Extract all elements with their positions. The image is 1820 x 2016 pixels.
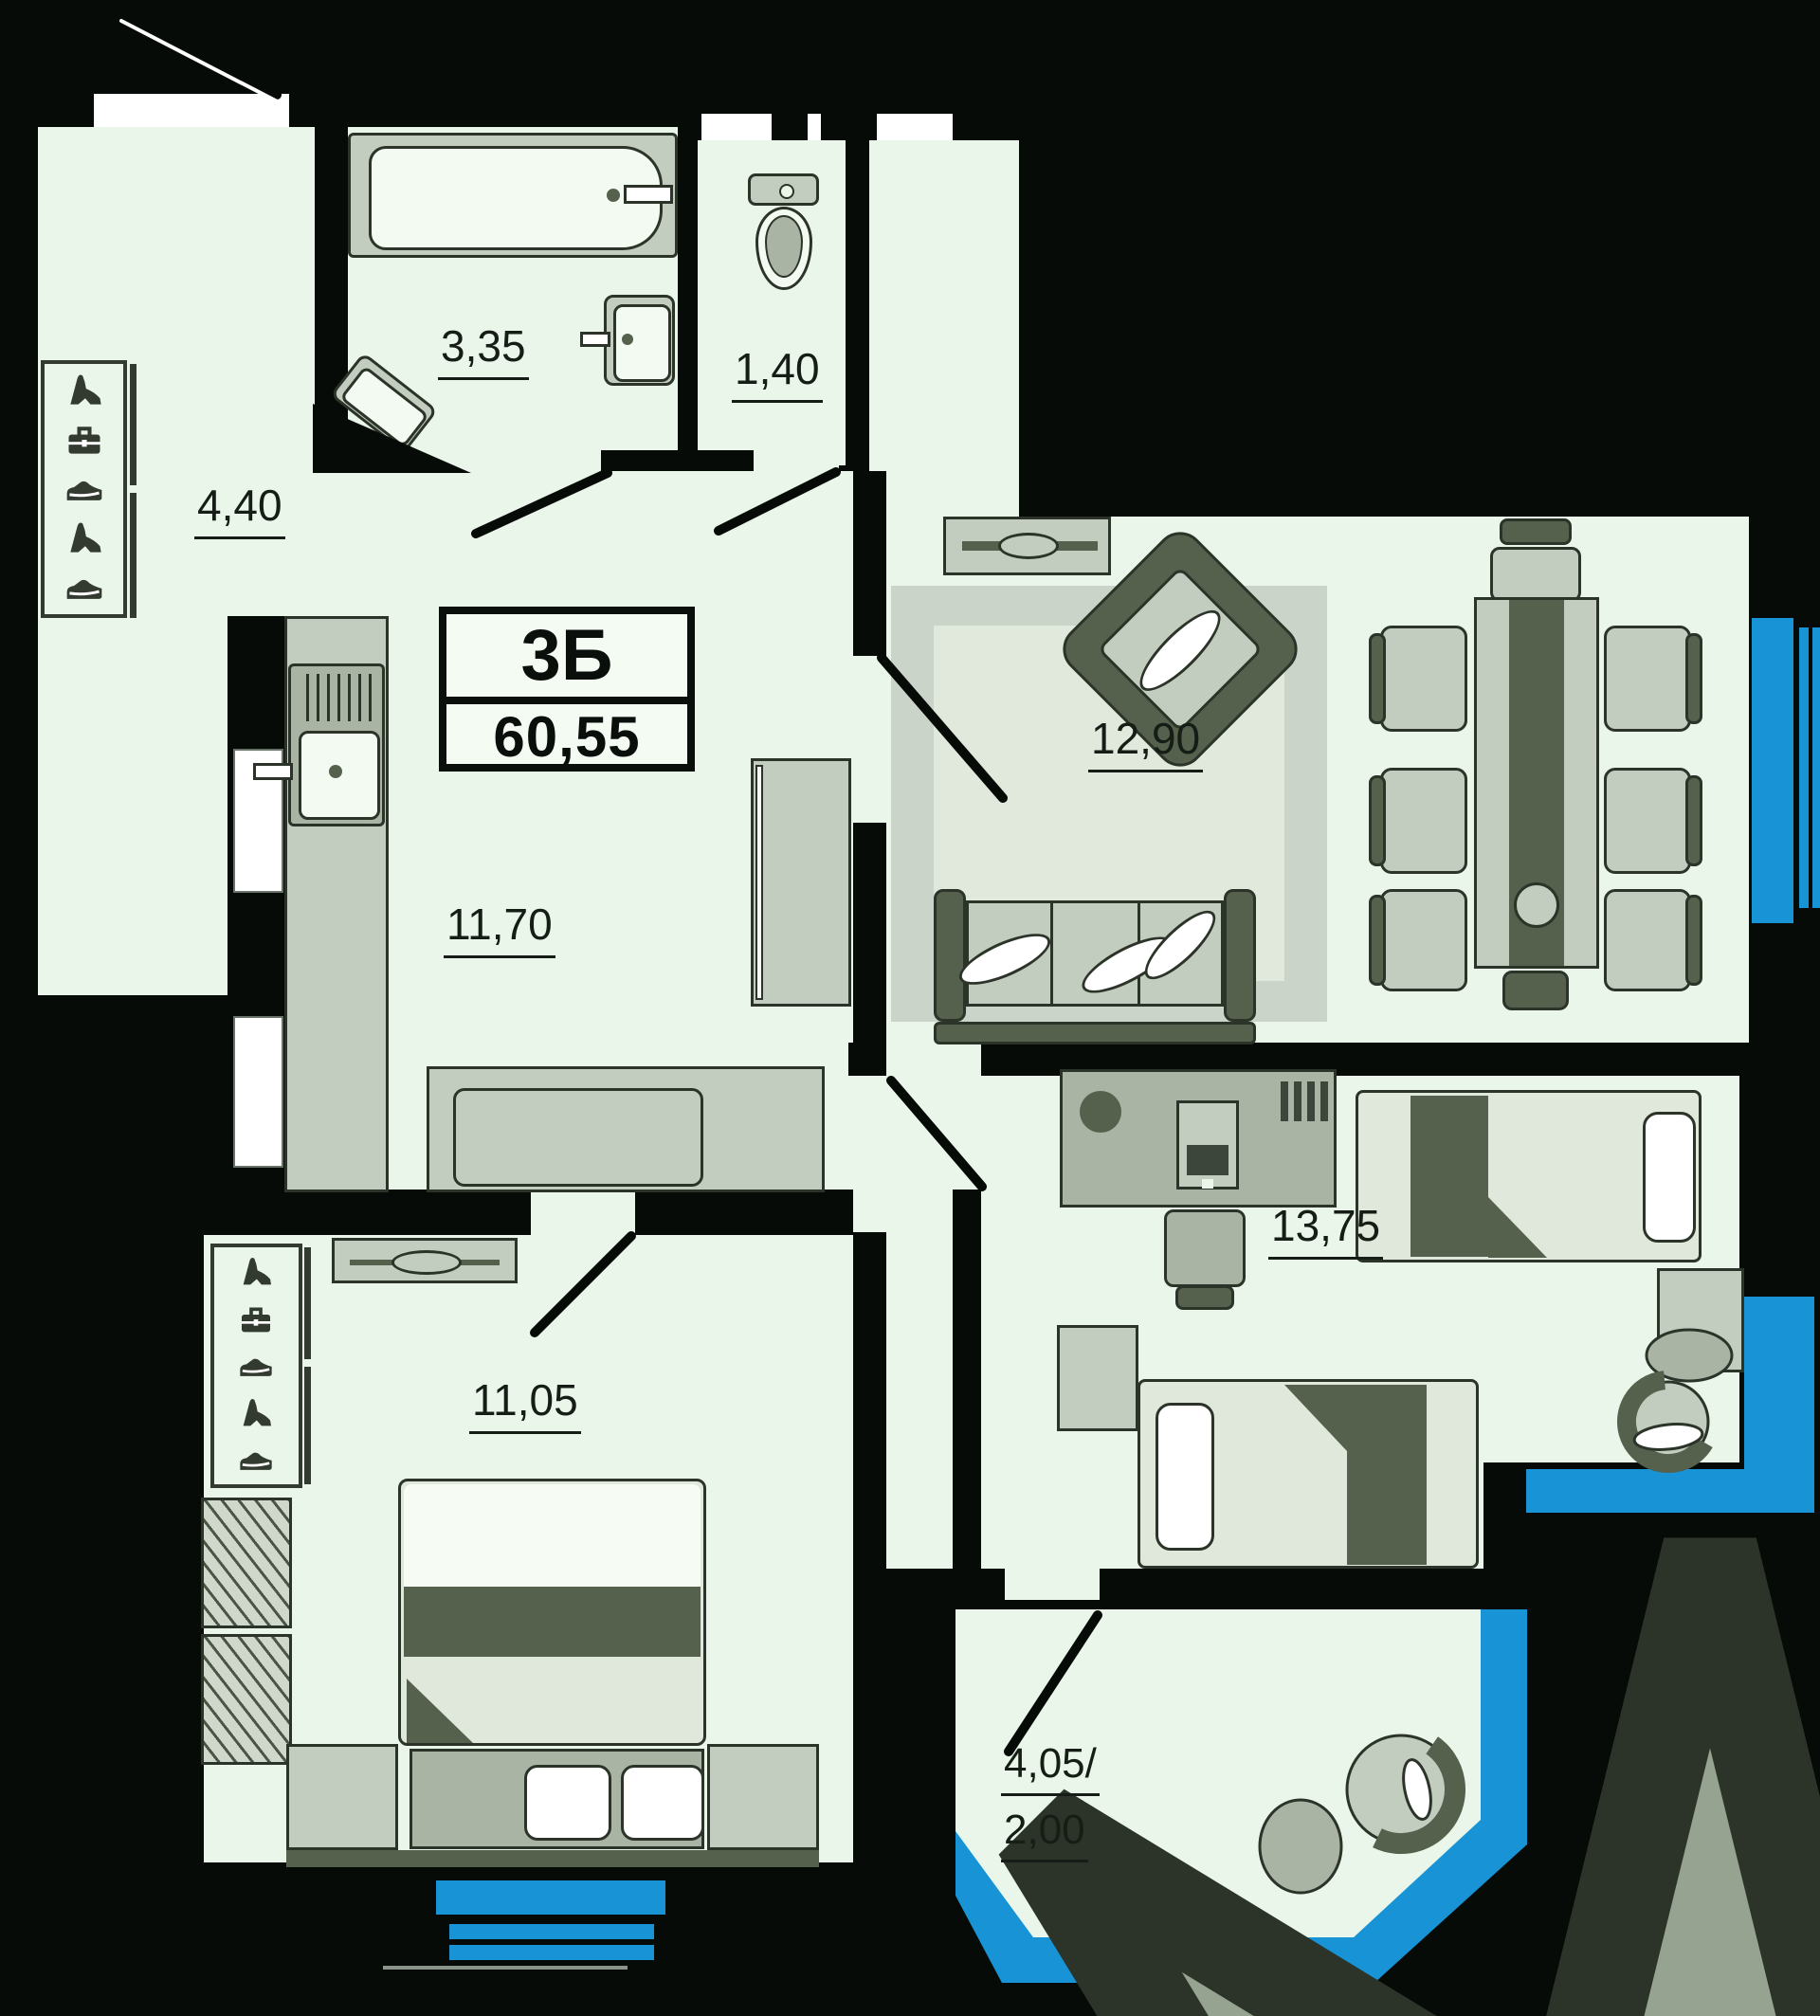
desk-chair-back [1175,1285,1234,1310]
kitchen-sink-unit [288,663,385,826]
stove [453,1088,703,1187]
bedroom-large-window-glass [1526,1469,1814,1513]
apartment-total-area: 60,55 [446,704,687,770]
wall-segment [953,1190,981,1569]
rack-divider [130,364,136,485]
entrance-door-leaf [106,6,277,95]
blanket-fold [407,1679,473,1743]
sofa-armrest [934,889,966,1022]
wall-segment [848,1043,886,1076]
dining-chair-arm [1369,775,1386,866]
bed-single [1356,1090,1702,1262]
wall-segment [846,140,869,471]
kitchen-faucet [253,763,293,780]
door-swing-line [1009,1615,1098,1752]
toilet-bowl-inner [765,215,803,278]
bedroom-large-area-label: 13,75 [1268,1200,1383,1260]
bathtub [348,133,678,258]
cabinet-door-edge [755,765,763,1000]
balcony-chair-back [1326,1715,1477,1865]
toilet-tank [748,173,819,206]
balcony-door-gap [1005,1569,1100,1611]
dining-chair-arm [1685,895,1702,986]
briefcase-icon [64,419,105,461]
dresser-handle-lens [391,1250,462,1275]
sofa-base [934,1022,1256,1044]
high-heel-shoe-icon [237,1253,275,1291]
bathroom-sink [604,295,675,386]
laptop-touchpad [1202,1179,1213,1189]
balcony-chair-cushion [1399,1757,1436,1822]
books [1281,1081,1330,1121]
wall-segment [948,1569,1005,1611]
living-window-glass [1752,618,1793,923]
wardrobe-hangers [201,1634,292,1765]
desk-object [1080,1091,1121,1133]
high-heel-shoe-icon [64,370,105,411]
bathroom-door-gap [468,450,601,474]
kitchen-area-label: 11,70 [444,899,555,958]
apartment-title-box: 3Б 60,55 [439,607,695,772]
bedroom-shoe-rack-icons [218,1253,294,1479]
corridor-cabinet [751,758,851,1007]
balcony-area-label-bottom: 2,00 [1001,1807,1088,1862]
wall-segment [1483,1462,1526,1611]
wall-segment [678,127,698,471]
high-heel-shoe-icon [237,1394,275,1432]
wall-segment [853,823,886,1043]
sofa-cushion-divider [1050,903,1053,1004]
toilet-button [779,184,794,199]
living-window-glass [1799,627,1809,908]
bedroom-small-area-label: 11,05 [469,1374,581,1434]
wall-segment [853,471,886,656]
wardrobe-hangers [201,1498,292,1628]
bedroom-small-window-glass [436,1880,665,1915]
tv-stand-lens [998,533,1059,559]
nightstand [707,1744,819,1850]
dining-table-end [1502,971,1569,1010]
laptop [1176,1100,1239,1190]
sneaker-icon [64,567,105,608]
sneaker-icon [64,468,105,510]
wc-area-label: 1,40 [732,343,823,403]
lamp-icon [1375,1825,1820,2016]
plant-icon [758,1549,1820,2016]
sink-drainboard [299,674,374,721]
bed-blanket-band [1410,1096,1488,1257]
bed-pillow [1643,1112,1696,1243]
dining-chair-arm [1685,633,1702,724]
rack-divider [304,1247,311,1359]
bedroom-small-door-gap [531,1190,635,1235]
bed-pillow [1156,1403,1214,1551]
side-table-icon [1297,1568,1820,2016]
wall-segment [601,450,678,471]
living-area-label: 12,90 [1088,713,1203,772]
sneaker-icon [237,1347,275,1385]
blanket-fold [1284,1385,1347,1451]
entrance-opening [94,94,289,127]
bench-pillow [621,1765,704,1841]
bedroom-small-window-glass [449,1924,654,1939]
desk-chair [1164,1209,1246,1287]
wall-niche [808,114,821,140]
dining-chair [1604,889,1691,991]
dining-chair [1604,626,1691,732]
dining-chair [1380,626,1467,732]
dining-chair [1380,768,1467,874]
rack-divider [304,1367,311,1484]
bed-single [1137,1379,1479,1569]
nightstand [286,1744,398,1850]
wall-niche [877,114,953,140]
dining-chair-arm [1369,895,1386,986]
balcony-stool [1260,1800,1341,1893]
dining-chair-arm [1369,633,1386,724]
desk [1060,1069,1337,1208]
sneaker-icon [237,1441,275,1479]
wc-door-gap [754,450,839,474]
dining-chair-back [1500,518,1572,545]
laptop-keyboard [1187,1145,1228,1175]
plan-edge-line [383,1966,628,1970]
sink-faucet [580,332,610,347]
balcony-area-label-top: 4,05/ [1001,1740,1100,1796]
corridor-door-gap [886,1043,981,1076]
wall-segment [635,1192,853,1235]
bathtub-faucet [624,185,673,204]
dining-chair [1604,768,1691,874]
sofa-armrest [1224,889,1256,1022]
apartment-type-code: 3Б [446,614,687,704]
bedroom-large-window-glass [1744,1297,1814,1469]
nightstand [1657,1268,1744,1372]
wall-segment [1100,1569,1393,1611]
balcony-glazing [955,1609,1527,1983]
hall-shoe-rack-icons [47,370,121,608]
kitchen-window [233,1016,283,1168]
kitchen-sink-drain [329,765,342,778]
sink-basin [613,304,671,382]
balcony-table [1347,1735,1455,1843]
wall-niche [701,114,772,140]
nightstand [1057,1325,1138,1431]
wall-segment [190,1192,531,1235]
dining-plate [1514,882,1559,928]
bed-double [398,1479,706,1746]
floor-plan: 4,40 3,35 1,40 11,70 [0,0,1820,2016]
bathroom-area-label: 3,35 [438,320,529,380]
room-living-alcove [869,140,1019,517]
bench-pillow [524,1765,611,1841]
bathtub-drain [607,189,620,202]
blanket-fold [1488,1197,1547,1258]
bed-blanket-band [1347,1385,1427,1565]
dining-chair [1380,889,1467,991]
bed-blanket-band [404,1587,701,1657]
living-window-glass [1812,627,1820,908]
wall-segment [853,1232,886,1865]
dining-chair-arm [1685,775,1702,866]
briefcase-icon [237,1300,275,1338]
dresser [332,1238,518,1283]
wall-segment [698,450,754,471]
corridor-door-gap [953,1076,981,1190]
sink-drain [622,334,633,345]
dining-chair [1490,547,1581,602]
high-heel-shoe-icon [64,518,105,559]
bed-sheet [404,1484,701,1587]
bed-base-strip [286,1850,819,1867]
tv-stand [943,517,1111,575]
hallway-area-label: 4,40 [194,480,285,539]
rack-divider [130,493,136,618]
bed-foot-bench [409,1749,704,1849]
dining-table [1474,597,1599,969]
bedroom-small-window-glass [449,1945,654,1960]
